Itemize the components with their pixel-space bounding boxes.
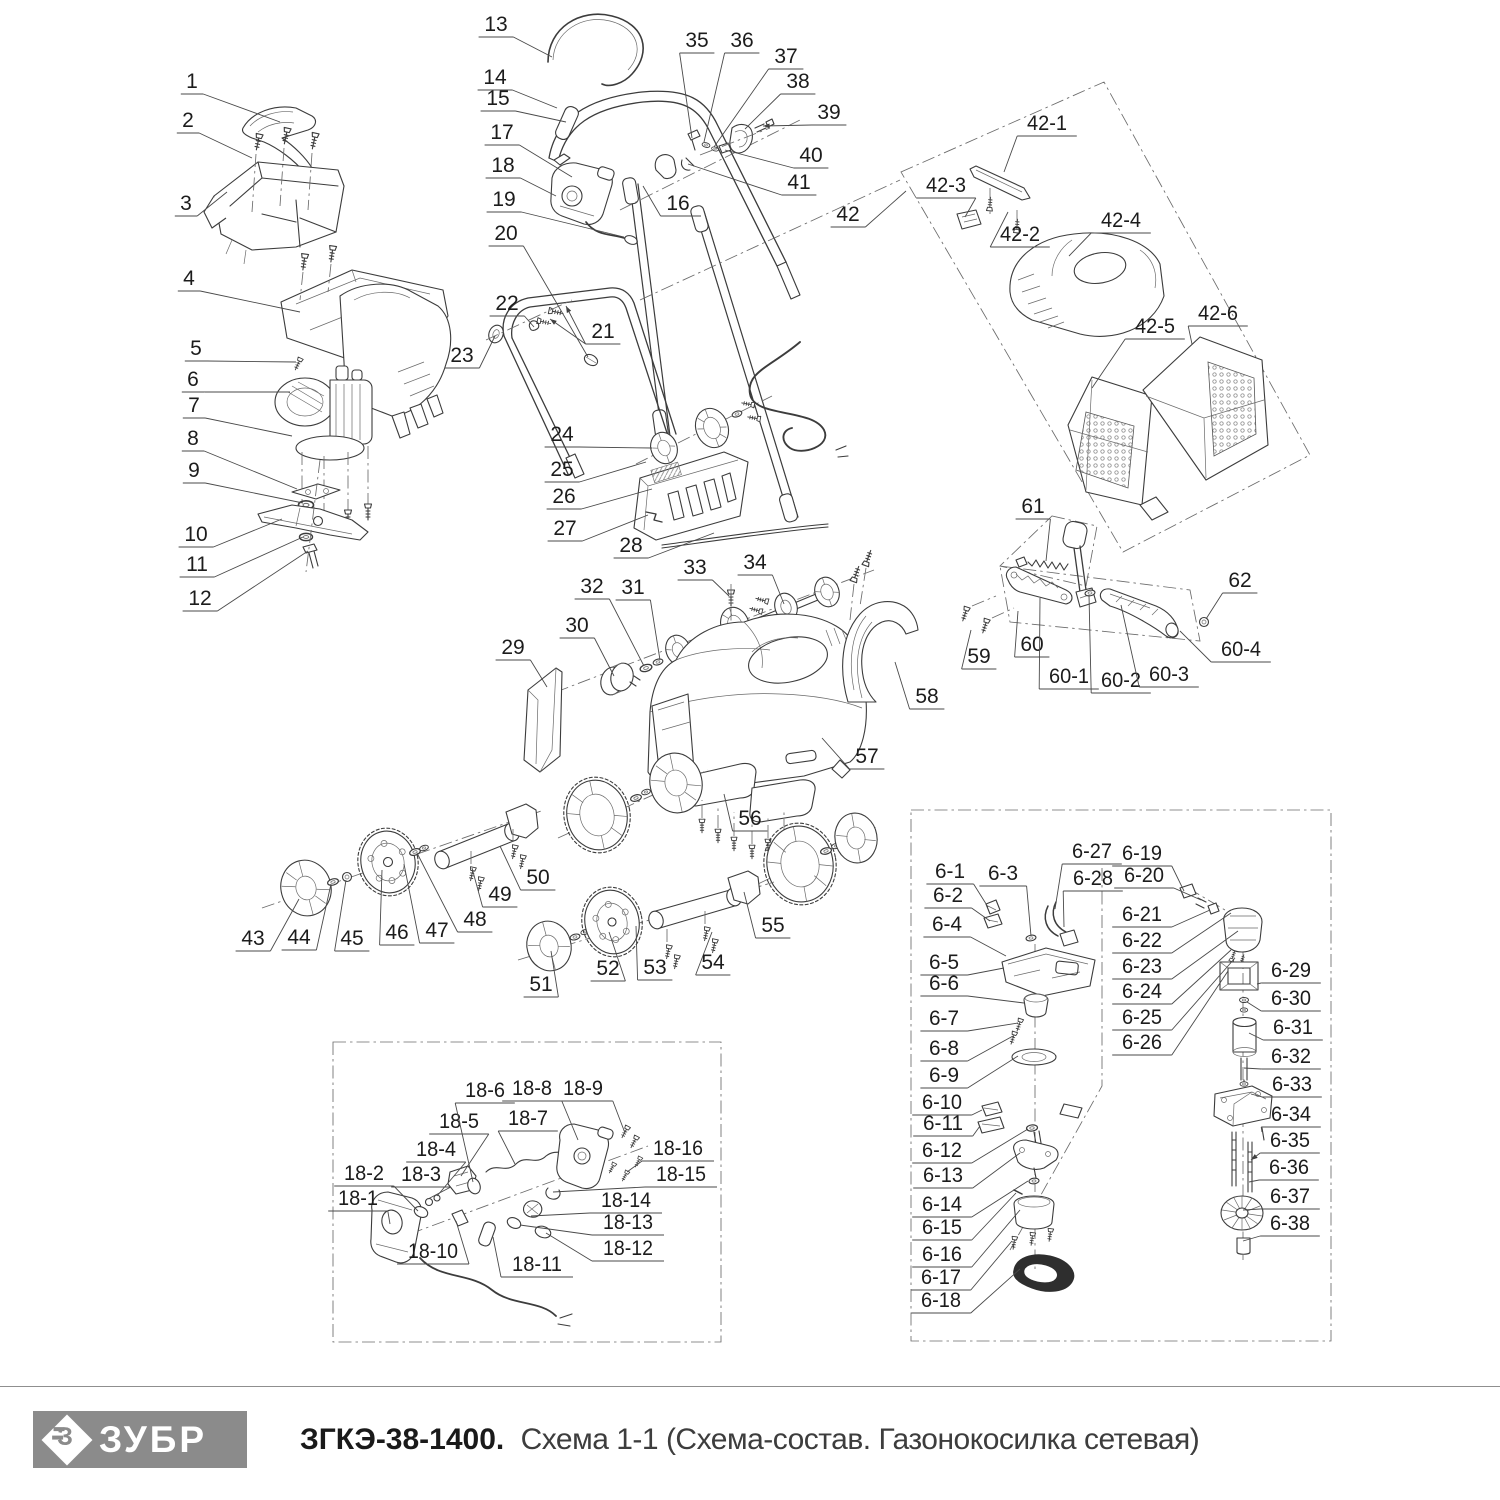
part-label-18-13: 18-13 xyxy=(603,1211,653,1234)
part-label-6-10: 6-10 xyxy=(922,1091,962,1114)
motor-cover-art xyxy=(634,452,828,548)
part-label-6-1: 6-1 xyxy=(935,860,965,883)
part-label-39: 39 xyxy=(817,101,840,124)
part-label-55: 55 xyxy=(761,914,784,937)
part-label-6-32: 6-32 xyxy=(1271,1045,1311,1068)
lever-part-art xyxy=(242,107,315,173)
part-label-18: 18 xyxy=(491,154,514,177)
part-label-42-1: 42-1 xyxy=(1027,112,1067,135)
part-label-18-11: 18-11 xyxy=(512,1253,562,1276)
part-label-41: 41 xyxy=(787,171,810,194)
leader-line-2 xyxy=(177,133,252,158)
part-label-17: 17 xyxy=(490,121,513,144)
part-label-6-18: 6-18 xyxy=(921,1289,961,1312)
part-label-6-6: 6-6 xyxy=(929,972,959,995)
part-label-42-2: 42-2 xyxy=(1000,223,1040,246)
part-label-61: 61 xyxy=(1021,495,1044,518)
part-label-40: 40 xyxy=(799,144,822,167)
part-label-18-7: 18-7 xyxy=(508,1107,548,1130)
part-label-15: 15 xyxy=(486,87,509,110)
leader-line-9 xyxy=(183,483,303,503)
part-label-51: 51 xyxy=(529,973,552,996)
leader-line-35 xyxy=(680,53,715,138)
part-label-53: 53 xyxy=(643,956,666,979)
part-label-6-28: 6-28 xyxy=(1073,867,1113,890)
cable-loop-art xyxy=(548,14,643,85)
part-label-16: 16 xyxy=(666,192,689,215)
part-label-50: 50 xyxy=(526,866,549,889)
part-label-45: 45 xyxy=(340,927,363,950)
part-label-46: 46 xyxy=(385,921,408,944)
part-label-6-17: 6-17 xyxy=(921,1266,961,1289)
part-label-36: 36 xyxy=(730,29,753,52)
wheel-group-front-art xyxy=(557,748,708,859)
part-label-6-13: 6-13 xyxy=(923,1164,963,1187)
blade-mount-art xyxy=(292,484,340,509)
part-label-18-14: 18-14 xyxy=(601,1189,651,1212)
part-label-27: 27 xyxy=(553,517,576,540)
part-label-18-10: 18-10 xyxy=(408,1240,458,1263)
part-label-6-30: 6-30 xyxy=(1271,987,1311,1010)
part-label-18-8: 18-8 xyxy=(512,1077,552,1100)
part-label-7: 7 xyxy=(188,394,200,417)
leader-line-13 xyxy=(479,37,552,57)
part-label-24: 24 xyxy=(550,423,574,446)
part-label-42-6: 42-6 xyxy=(1198,302,1238,325)
part-label-13: 13 xyxy=(484,13,507,36)
part-label-29: 29 xyxy=(501,636,524,659)
brand-name: ЗУБР xyxy=(99,1419,207,1461)
part-label-6-31: 6-31 xyxy=(1273,1016,1313,1039)
part-label-52: 52 xyxy=(596,957,619,980)
part-label-28: 28 xyxy=(619,534,642,557)
part-label-3: 3 xyxy=(180,192,192,215)
part-label-18-9: 18-9 xyxy=(563,1077,603,1100)
part-label-47: 47 xyxy=(425,919,448,942)
part-label-22: 22 xyxy=(495,292,518,315)
part-label-18-6: 18-6 xyxy=(465,1079,505,1102)
part-label-37: 37 xyxy=(774,45,797,68)
axle-cap-art xyxy=(598,661,636,697)
height-adjust-art xyxy=(960,516,1209,641)
part-label-18-3: 18-3 xyxy=(401,1163,441,1186)
page: 1234567891011121314151617181920212223242… xyxy=(0,0,1500,1500)
part-label-6-36: 6-36 xyxy=(1269,1156,1309,1179)
catcher-half-right-art xyxy=(1143,337,1268,480)
zubr-z-glyph: З xyxy=(57,1422,73,1451)
part-label-6-26: 6-26 xyxy=(1122,1031,1162,1054)
part-label-6-7: 6-7 xyxy=(929,1007,959,1030)
part-label-6-34: 6-34 xyxy=(1271,1103,1311,1126)
part-label-6-3: 6-3 xyxy=(988,862,1018,885)
screw-part5-art xyxy=(293,357,303,371)
rear-guard-art xyxy=(843,549,918,702)
leader-line-24 xyxy=(545,447,652,448)
leader-line-39 xyxy=(763,125,846,126)
mulch-wedge-art xyxy=(524,668,562,772)
leader-line-61 xyxy=(1016,519,1051,561)
leader-line-42-1 xyxy=(1004,136,1077,172)
model-number: ЗГКЭ-38-1400. xyxy=(300,1423,504,1456)
leader-line-5 xyxy=(185,361,296,362)
knob-bolt-cluster-art xyxy=(655,119,774,179)
part-label-21: 21 xyxy=(591,320,614,343)
top-cover-art xyxy=(204,127,344,264)
part-label-6-5: 6-5 xyxy=(929,951,959,974)
part-label-38: 38 xyxy=(786,70,809,93)
part-label-6-35: 6-35 xyxy=(1270,1129,1310,1152)
part-label-42-5: 42-5 xyxy=(1135,315,1175,338)
leader-line-6-3 xyxy=(979,886,1031,936)
part-label-33: 33 xyxy=(683,556,706,579)
zubr-diamond-icon: З xyxy=(42,1414,93,1465)
part-label-60-2: 60-2 xyxy=(1101,669,1141,692)
leader-line-6-28 xyxy=(1063,891,1123,927)
part-label-48: 48 xyxy=(463,908,486,931)
part-label-54: 54 xyxy=(701,951,725,974)
part-label-9: 9 xyxy=(188,459,200,482)
footer: З ЗУБР ЗГКЭ-38-1400. Схема 1-1 (Схема-со… xyxy=(0,1386,1500,1500)
part-label-18-15: 18-15 xyxy=(656,1163,706,1186)
part-label-6-37: 6-37 xyxy=(1270,1185,1310,1208)
part-label-6-8: 6-8 xyxy=(929,1037,959,1060)
part-label-59: 59 xyxy=(967,645,990,668)
zubr-logo: З ЗУБР xyxy=(33,1411,247,1468)
part-label-18-2: 18-2 xyxy=(344,1162,384,1185)
leader-line-7 xyxy=(183,418,292,436)
leader-line-31 xyxy=(616,600,660,660)
fan-art xyxy=(1221,1196,1263,1230)
leader-line-18-7 xyxy=(498,1131,558,1164)
part-label-6-27: 6-27 xyxy=(1072,840,1112,863)
left-arm-art xyxy=(1006,567,1072,604)
scheme-subtitle: Схема 1-1 (Схема-состав. Газонокосилка с… xyxy=(521,1423,1200,1456)
part-label-20: 20 xyxy=(494,222,517,245)
leader-line-6-36 xyxy=(1249,1180,1319,1182)
part-label-44: 44 xyxy=(287,926,311,949)
part-label-18-4: 18-4 xyxy=(416,1138,456,1161)
part-label-1: 1 xyxy=(186,70,198,93)
part-label-6-9: 6-9 xyxy=(929,1064,959,1087)
part-label-57: 57 xyxy=(855,745,878,768)
part-label-18-16: 18-16 xyxy=(653,1137,703,1160)
part-label-42: 42 xyxy=(836,203,859,226)
part-label-4: 4 xyxy=(183,267,195,290)
part-label-18-1: 18-1 xyxy=(338,1187,378,1210)
part-label-5: 5 xyxy=(190,337,202,360)
part-label-49: 49 xyxy=(488,883,511,906)
part-label-12: 12 xyxy=(188,587,211,610)
part-label-6-20: 6-20 xyxy=(1124,864,1164,887)
part-label-25: 25 xyxy=(550,458,573,481)
cable-clip-art xyxy=(582,352,599,368)
part-label-56: 56 xyxy=(738,807,761,830)
leader-line-6-32 xyxy=(1244,1068,1321,1069)
part-label-6-4: 6-4 xyxy=(932,913,962,936)
part-label-19: 19 xyxy=(492,188,515,211)
part-label-31: 31 xyxy=(621,576,644,599)
part-label-6-19: 6-19 xyxy=(1122,842,1162,865)
part-label-60-1: 60-1 xyxy=(1049,665,1089,688)
part-label-6: 6 xyxy=(187,368,199,391)
part-label-6-29: 6-29 xyxy=(1271,959,1311,982)
part-label-6-21: 6-21 xyxy=(1122,903,1162,926)
part-label-6-14: 6-14 xyxy=(922,1193,962,1216)
grass-catcher-inset-art xyxy=(901,82,1310,552)
part-label-42-4: 42-4 xyxy=(1101,209,1141,232)
part-label-26: 26 xyxy=(552,485,575,508)
wheel-group-right-art xyxy=(757,810,881,911)
part-label-42-3: 42-3 xyxy=(926,174,966,197)
part-label-6-15: 6-15 xyxy=(922,1216,962,1239)
leader-line-33 xyxy=(678,580,729,596)
part-label-58: 58 xyxy=(915,685,938,708)
part-label-6-33: 6-33 xyxy=(1272,1073,1312,1096)
part-label-6-11: 6-11 xyxy=(923,1112,963,1135)
part-label-60-4: 60-4 xyxy=(1221,638,1261,661)
part-label-6-2: 6-2 xyxy=(933,884,963,907)
parts-diagram: 1234567891011121314151617181920212223242… xyxy=(0,0,1500,1386)
part-label-6-22: 6-22 xyxy=(1122,929,1162,952)
part-label-6-16: 6-16 xyxy=(922,1243,962,1266)
blade-art xyxy=(258,460,368,572)
leader-line-62 xyxy=(1206,593,1257,619)
motor-inset-left-parts xyxy=(978,900,1095,1291)
part-label-10: 10 xyxy=(184,523,207,546)
leader-line-6-38 xyxy=(1243,1236,1320,1241)
leader-line-6-6 xyxy=(920,996,1024,1003)
part-label-62: 62 xyxy=(1228,569,1251,592)
part-label-2: 2 xyxy=(182,109,194,132)
scheme-title: ЗГКЭ-38-1400. Схема 1-1 (Схема-состав. Г… xyxy=(300,1423,1199,1457)
part-label-43: 43 xyxy=(241,927,264,950)
part-label-34: 34 xyxy=(743,551,767,574)
part-label-30: 30 xyxy=(565,614,588,637)
part-label-35: 35 xyxy=(685,29,708,52)
part-label-6-25: 6-25 xyxy=(1122,1006,1162,1029)
part-label-6-24: 6-24 xyxy=(1122,980,1162,1003)
part-label-8: 8 xyxy=(187,427,199,450)
part-label-32: 32 xyxy=(580,575,603,598)
part-label-23: 23 xyxy=(450,344,473,367)
part-label-14: 14 xyxy=(483,66,507,89)
part-label-6-23: 6-23 xyxy=(1122,955,1162,978)
part-label-11: 11 xyxy=(186,553,208,576)
leader-line-6-29 xyxy=(1257,983,1321,984)
part-label-60: 60 xyxy=(1020,633,1043,656)
part-label-6-12: 6-12 xyxy=(922,1139,962,1162)
part-label-6-38: 6-38 xyxy=(1270,1212,1310,1235)
motor-inset-art xyxy=(911,810,1331,1341)
part-label-18-12: 18-12 xyxy=(603,1237,653,1260)
leader-line-38 xyxy=(745,94,815,129)
switch-inset-parts xyxy=(371,1124,643,1326)
right-arm-art xyxy=(1100,589,1179,638)
part-label-60-3: 60-3 xyxy=(1149,663,1189,686)
spring-art xyxy=(1016,557,1068,570)
catcher-handle-strip-art xyxy=(970,166,1030,200)
